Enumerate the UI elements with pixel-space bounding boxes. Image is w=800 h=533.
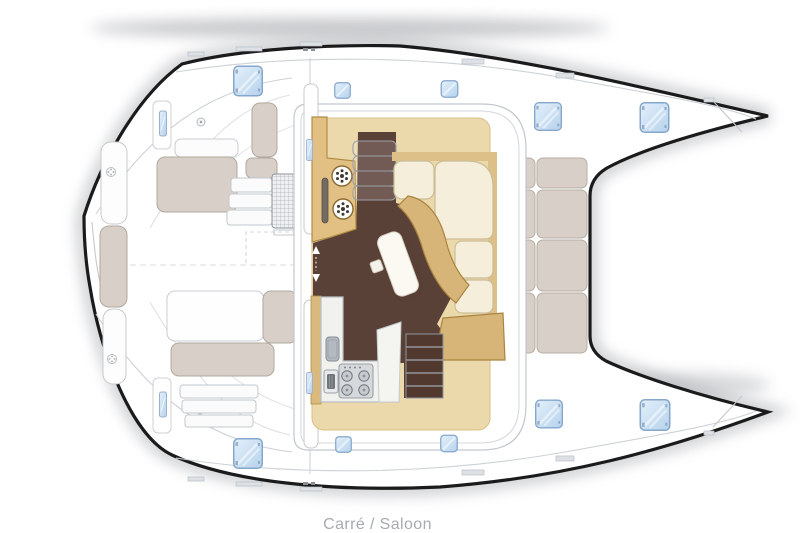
counter-peninsula — [377, 322, 401, 402]
deck-hatch-small — [441, 435, 458, 452]
cockpit-steps — [180, 385, 258, 427]
cockpit-backrest-cushion — [252, 103, 277, 157]
deck-hatch — [640, 103, 669, 133]
caption-label: Carré / Saloon — [300, 516, 455, 533]
cockpit-cushion — [157, 157, 237, 212]
transom-step-port — [101, 142, 127, 224]
deck-hatch — [234, 439, 263, 469]
oven-icon — [324, 370, 338, 393]
deck-hatch — [640, 400, 669, 430]
round-sink-icon — [332, 166, 352, 186]
deck-hatch-small — [336, 437, 352, 453]
sofa-corner-cushion — [435, 161, 493, 239]
deck-hatch — [536, 400, 563, 428]
hull-window — [160, 111, 167, 136]
stairs-aft — [406, 334, 443, 398]
deck-hatch-small — [441, 81, 458, 98]
transom-cushion — [100, 226, 127, 307]
sofa-cushion — [455, 241, 493, 278]
cockpit-steps — [227, 178, 272, 225]
hull-window — [160, 392, 167, 417]
round-sink-icon — [333, 199, 353, 219]
faucet-bar-icon — [322, 178, 328, 223]
transom-platforms — [100, 142, 127, 384]
cockpit-bench-cushion — [171, 343, 274, 376]
transom-step-starboard — [103, 309, 126, 384]
cockpit-side-cushion — [263, 291, 297, 343]
sink-icon — [326, 337, 339, 361]
catamaran-floor-plan — [0, 0, 800, 533]
stairs-forward — [353, 141, 396, 200]
hull-window — [307, 139, 313, 160]
deck-hatch — [234, 66, 263, 96]
hull-window — [307, 372, 313, 393]
sofa-cushion — [394, 161, 434, 199]
deck-hatch-small — [335, 83, 351, 99]
deck-hatch — [535, 103, 562, 131]
floor-plan-image: Carré / Saloon — [0, 0, 800, 533]
aft-bench — [439, 313, 505, 360]
stove-icon — [339, 364, 373, 398]
